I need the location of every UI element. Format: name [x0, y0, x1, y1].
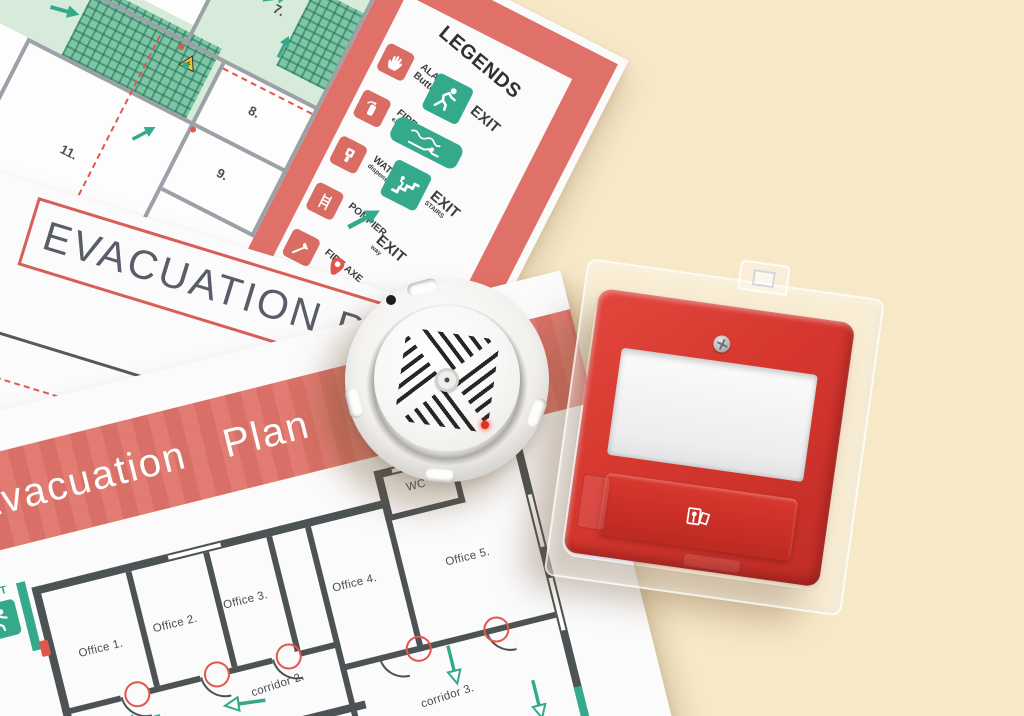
window-symbol — [547, 577, 568, 631]
exit-runner-icon — [0, 598, 22, 642]
call-point-screw — [712, 334, 731, 353]
fire-alarm-call-point — [543, 258, 885, 617]
wall-segment — [62, 695, 122, 715]
door-arc — [379, 651, 411, 683]
cover-tab-slot — [752, 269, 776, 288]
photo-scene: 4. 10. 7. 8. 11. 9. — [0, 0, 1024, 716]
call-point-glass — [607, 348, 818, 483]
wall-segment — [375, 478, 424, 652]
legend-label: EXIT STAIRS — [422, 188, 462, 227]
room-number: 8. — [246, 103, 262, 121]
ladder-icon — [305, 181, 345, 221]
room-label: Office 2. — [152, 613, 199, 636]
route-arrow — [391, 710, 441, 716]
call-point-flap — [598, 473, 799, 561]
room-number: 11. — [58, 141, 80, 162]
wall-segment — [385, 496, 466, 522]
exit-wall-segment — [574, 686, 594, 716]
wall-segment — [194, 123, 288, 174]
route-arrow — [524, 676, 552, 716]
room-label: Office 1. — [78, 637, 125, 660]
detector-test-hole — [386, 295, 396, 305]
room-label: Office 4. — [331, 572, 378, 595]
detector-red-led — [481, 421, 489, 429]
door-marker-circle — [403, 633, 435, 665]
window-symbol — [167, 541, 221, 562]
detector-vent-grille — [394, 327, 500, 433]
corridor-label: corridor 3. — [420, 682, 476, 710]
route-arrow — [128, 120, 161, 146]
call-point-body — [563, 288, 856, 587]
water-dispenser-icon — [328, 135, 368, 175]
room-label: Office 5. — [444, 546, 491, 569]
alarm-button-icon — [376, 42, 416, 82]
reset-key-icon — [682, 501, 714, 533]
wall-segment — [266, 536, 300, 652]
wall-segment — [0, 37, 31, 196]
fire-extinguisher-icon — [352, 88, 392, 128]
plan-banner-title: Evacuation Plan — [0, 402, 315, 537]
detector-center-hub — [433, 366, 460, 393]
smoke-detector — [342, 275, 552, 485]
legend-label: EXIT — [467, 103, 503, 136]
room-number: 9. — [214, 165, 230, 183]
legend-label: EXIT way — [368, 232, 408, 271]
route-arrow — [439, 642, 467, 689]
window-symbol — [526, 493, 547, 547]
room-label: Office 3. — [222, 589, 269, 612]
detector-vent-slot — [425, 468, 456, 483]
